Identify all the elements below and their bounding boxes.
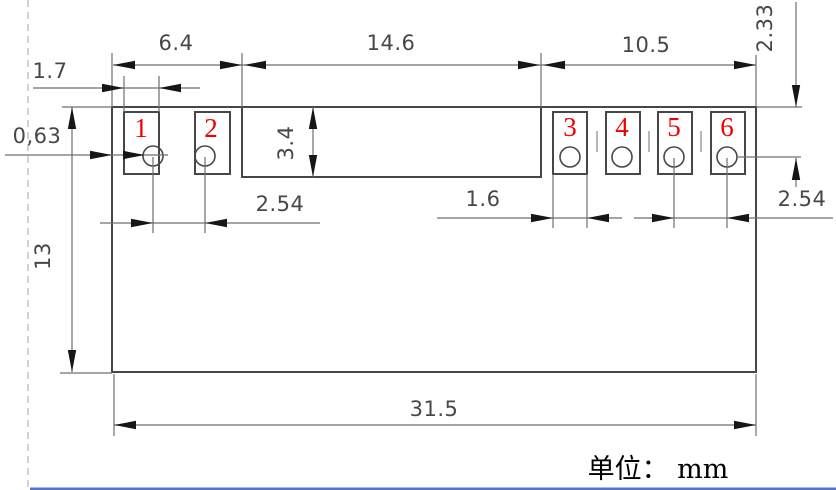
mechanical-drawing-page: 6.4 14.6 10.5 1.7 0,63 3.4 2.54 1.6 2.54… (0, 0, 836, 490)
pad-number-6: 6 (720, 112, 734, 142)
dimension-drawing-canvas: 6.4 14.6 10.5 1.7 0,63 3.4 2.54 1.6 2.54… (0, 0, 836, 490)
unit-note: 单位： mm (588, 454, 729, 485)
dim-right-pad-width: 1.6 (466, 187, 501, 211)
pad-number-4: 4 (615, 112, 629, 142)
pad-number-1: 1 (134, 113, 148, 143)
pin-holes (143, 146, 737, 167)
pad-number-2: 2 (204, 113, 218, 143)
dim-pin5-pin6-pitch: 2.54 (778, 187, 827, 211)
dim-edge-to-pad1-offset: 0,63 (13, 124, 62, 148)
dim-middle-section-width: 14.6 (367, 31, 416, 55)
dim-middle-notch-depth: 3.4 (274, 126, 298, 161)
pad-number-3: 3 (563, 112, 577, 142)
dim-top-to-pin-center: 2.33 (753, 4, 777, 53)
dim-left-section-width: 6.4 (159, 31, 194, 55)
dim-pin1-pin2-pitch: 2.54 (256, 192, 305, 216)
dim-overall-width: 31.5 (410, 397, 459, 421)
dim-body-height: 13 (31, 242, 55, 270)
dim-right-section-width: 10.5 (622, 33, 671, 57)
dim-left-pad-width: 1.7 (33, 59, 68, 83)
pad-number-5: 5 (667, 112, 681, 142)
